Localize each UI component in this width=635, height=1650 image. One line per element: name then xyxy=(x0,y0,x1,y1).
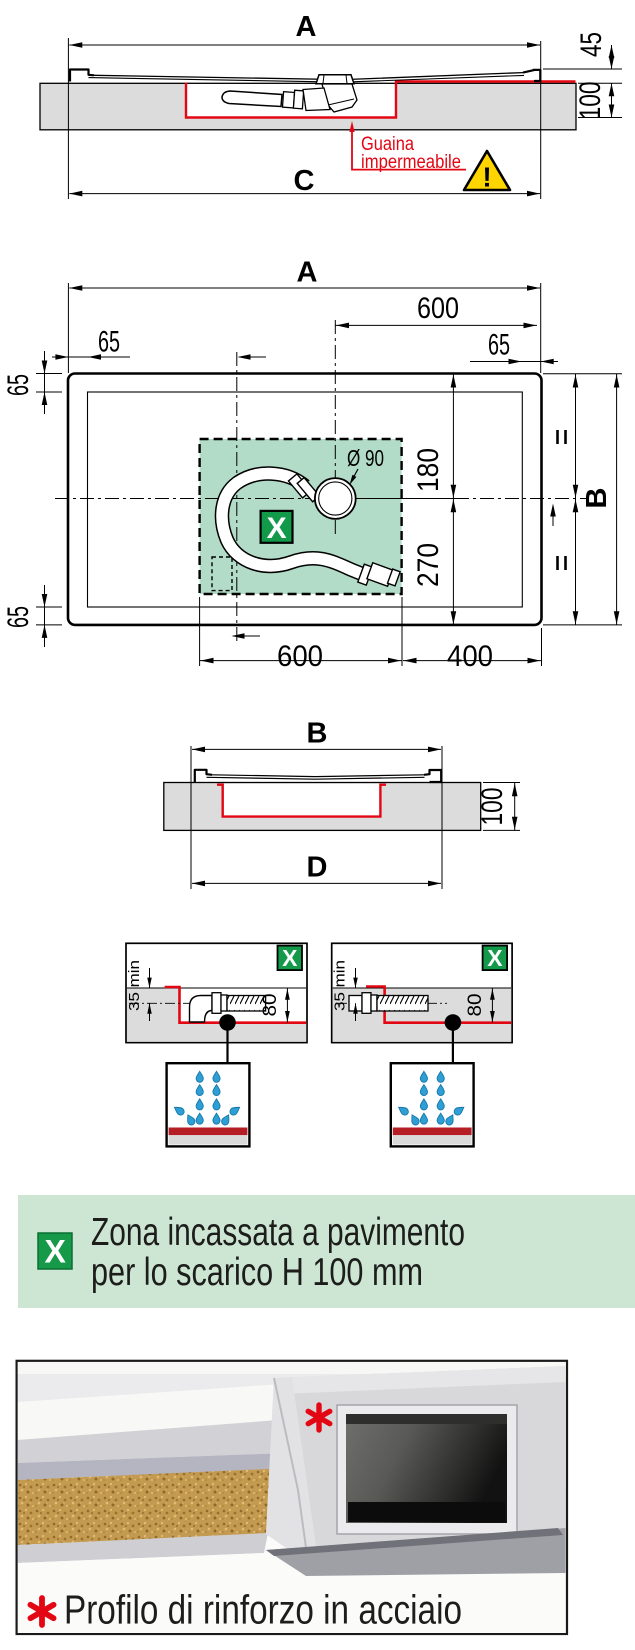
svg-text:65: 65 xyxy=(2,374,35,396)
svg-text:65: 65 xyxy=(488,329,510,362)
svg-text:35 min: 35 min xyxy=(332,960,349,1011)
svg-text:impermeabile: impermeabile xyxy=(361,152,461,173)
svg-text:270: 270 xyxy=(412,543,445,587)
svg-text:400: 400 xyxy=(447,640,493,673)
svg-text:A: A xyxy=(297,257,318,289)
svg-text:Profilo di rinforzo in acciaio: Profilo di rinforzo in acciaio xyxy=(64,1587,462,1633)
svg-text:Zona incassata a pavimento: Zona incassata a pavimento xyxy=(91,1211,465,1254)
svg-text:!: ! xyxy=(482,162,491,193)
svg-text:B: B xyxy=(581,488,613,509)
svg-text:35 min: 35 min xyxy=(126,960,143,1011)
svg-text:180: 180 xyxy=(412,448,445,492)
svg-text:45: 45 xyxy=(575,32,608,57)
svg-text:65: 65 xyxy=(2,606,35,628)
svg-text:D: D xyxy=(307,852,328,884)
svg-text:600: 600 xyxy=(277,640,323,673)
svg-text:65: 65 xyxy=(98,326,120,359)
svg-text:X: X xyxy=(487,945,503,971)
svg-text:X: X xyxy=(282,945,298,971)
svg-text:Ø 90: Ø 90 xyxy=(347,445,384,471)
svg-text:80: 80 xyxy=(260,994,281,1017)
svg-text:X: X xyxy=(267,512,287,545)
svg-text:100: 100 xyxy=(574,81,607,119)
svg-text:100: 100 xyxy=(476,788,509,826)
svg-text:600: 600 xyxy=(417,292,459,325)
svg-text:80: 80 xyxy=(465,994,486,1017)
svg-text:per lo scarico H 100 mm: per lo scarico H 100 mm xyxy=(91,1251,423,1294)
svg-text:X: X xyxy=(45,1234,67,1270)
svg-text:C: C xyxy=(294,165,315,197)
svg-text:A: A xyxy=(296,11,317,43)
svg-text:B: B xyxy=(307,718,328,750)
